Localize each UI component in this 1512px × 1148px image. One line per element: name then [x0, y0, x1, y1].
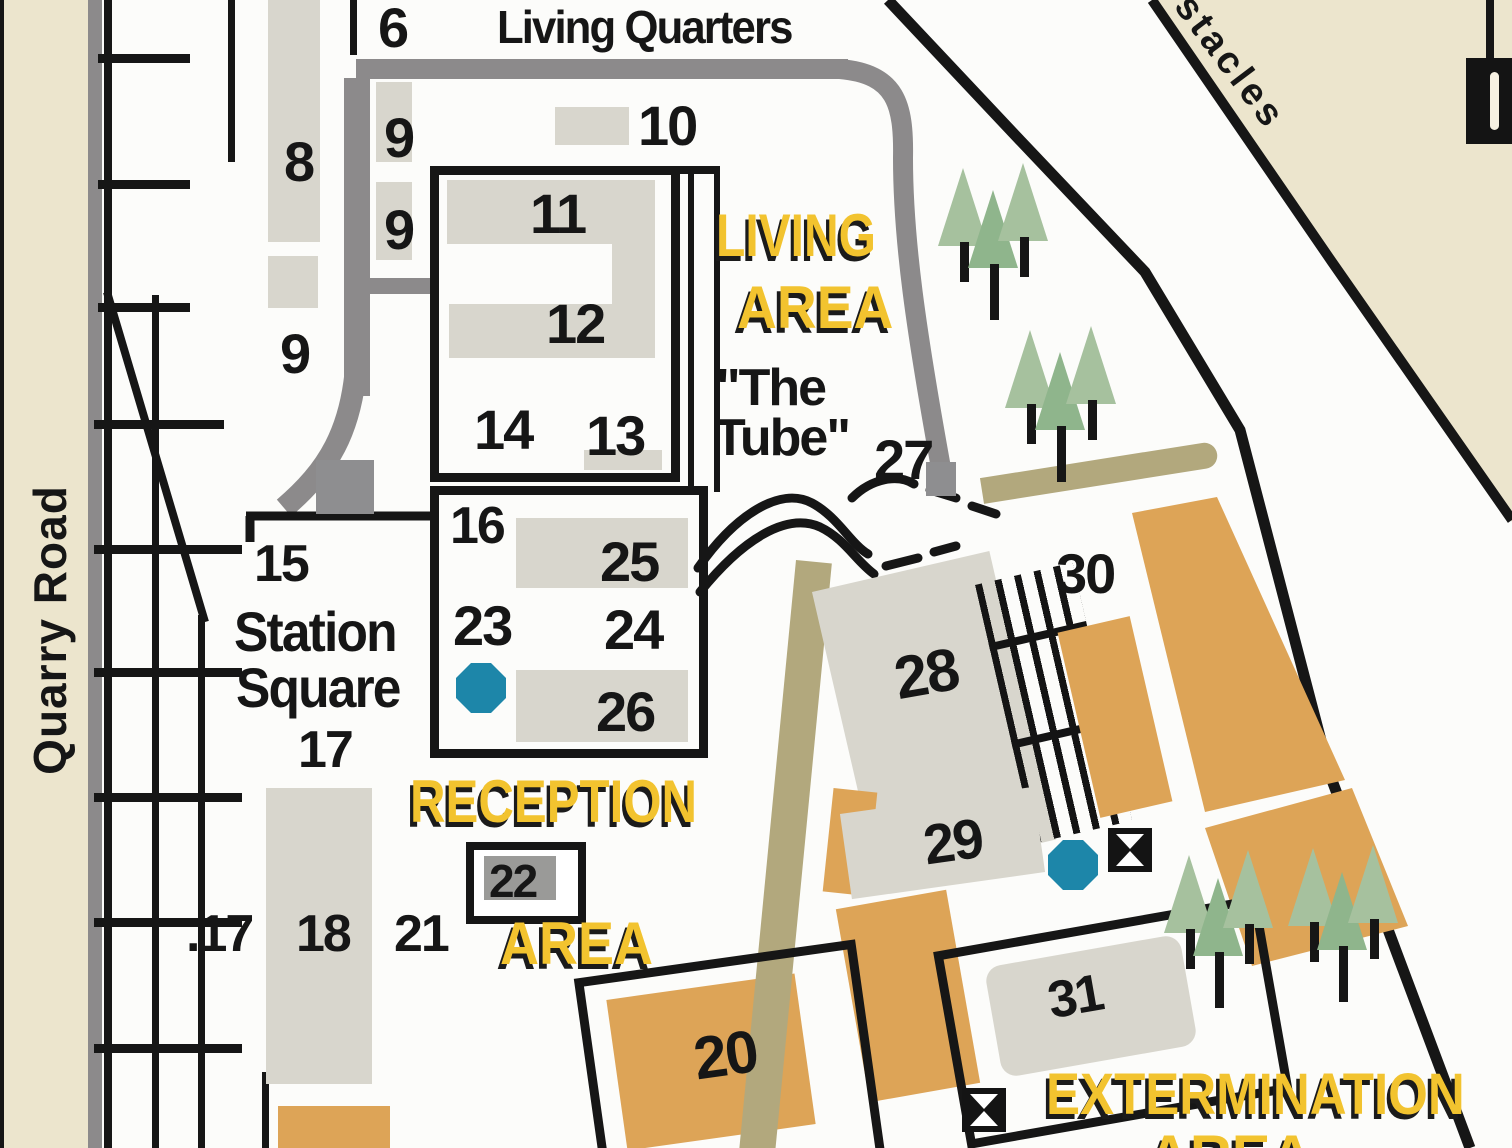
railroad-tie	[94, 1044, 242, 1053]
hourglass-flag-icon	[1108, 828, 1152, 872]
label-9c: 9	[280, 326, 309, 382]
label-8: 8	[284, 134, 313, 190]
hourglass-top	[1116, 834, 1144, 849]
label-12: 12	[546, 296, 604, 352]
railroad-tie	[98, 54, 190, 63]
label-27: 27	[874, 432, 932, 488]
label-23: 23	[453, 598, 511, 654]
hourglass-bottom	[1116, 851, 1144, 866]
hourglass-flag-icon	[962, 1088, 1006, 1132]
tube-corridor-line1	[688, 166, 694, 492]
extermination-label: EXTERMINATION	[1046, 1066, 1465, 1124]
corner-flag-stem	[1486, 0, 1494, 60]
railroad-tie	[98, 303, 190, 312]
label-10: 10	[638, 98, 696, 154]
rail-line-main	[104, 0, 112, 1148]
tube-corridor-top	[680, 166, 720, 174]
label-6: 6	[378, 0, 407, 56]
railroad-tie	[94, 545, 242, 554]
label-20: 20	[690, 1021, 760, 1089]
quarry-road-label: Quarry Road	[27, 415, 87, 845]
label-31: 31	[1044, 967, 1106, 1028]
label-24: 24	[604, 602, 662, 658]
pine-tree-icon	[998, 163, 1050, 283]
label-18: 18	[296, 908, 350, 960]
quarry-road-edge-line	[0, 0, 4, 1148]
hourglass-top	[970, 1094, 998, 1109]
label-26: 26	[596, 684, 654, 740]
station-square-label2: Square	[236, 660, 400, 716]
label-13: 13	[586, 408, 644, 464]
label-17: 17	[298, 724, 352, 776]
reception-label: RECEPTION	[410, 772, 697, 832]
corner-flag-icon	[1466, 58, 1512, 144]
label-25: 25	[600, 534, 658, 590]
railroad-tie	[94, 420, 224, 429]
pine-tree-icon	[1348, 845, 1400, 965]
building-10	[555, 107, 629, 145]
label-30: 30	[1056, 546, 1114, 602]
building6-line	[350, 0, 357, 55]
label-16: 16	[450, 500, 504, 552]
extermination-area-label: AREA	[1148, 1128, 1312, 1148]
label-9a: 9	[384, 110, 413, 166]
blue-octagon-marker	[1048, 840, 1098, 890]
label-22: 22	[489, 858, 536, 904]
reception-area-label: AREA	[500, 914, 653, 974]
building-8	[268, 0, 320, 242]
hourglass-bottom	[970, 1111, 998, 1126]
railroad-tie	[94, 668, 242, 677]
tube-label2: Tube"	[714, 412, 849, 464]
station-building	[316, 460, 374, 514]
boundary-line-top	[228, 0, 235, 162]
station-square-label1: Station	[234, 604, 396, 660]
quarry-road-gray-strip	[88, 0, 102, 1148]
living-area-label1: LIVING	[716, 206, 876, 266]
building-orange-sw	[278, 1106, 390, 1148]
railroad-tie	[94, 793, 242, 802]
pine-tree-icon	[1223, 850, 1275, 970]
living-quarters-label: Living Quarters	[497, 4, 791, 50]
railroad-tie	[98, 180, 190, 189]
label-17b: .17	[186, 908, 252, 960]
rail-line-siding2	[198, 615, 205, 1148]
corner-flag-slit	[1490, 72, 1499, 130]
living-area-label2: AREA	[737, 278, 893, 338]
label-15: 15	[254, 538, 308, 590]
blue-octagon-marker	[456, 663, 506, 713]
site-map: Quarry Road	[0, 0, 1512, 1148]
label-28: 28	[890, 639, 962, 709]
label-29: 29	[920, 810, 986, 874]
building-small	[268, 256, 318, 308]
label-21: 21	[394, 908, 448, 960]
tube-label1: "The	[716, 362, 825, 414]
label-14: 14	[474, 402, 532, 458]
label-9b: 9	[384, 202, 413, 258]
pine-tree-icon	[1066, 326, 1118, 446]
label-11: 11	[530, 186, 585, 242]
